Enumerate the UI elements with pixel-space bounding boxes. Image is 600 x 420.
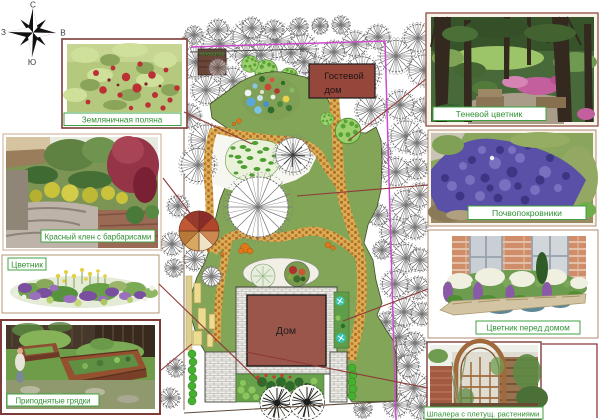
svg-text:генератор: генератор [199,52,224,58]
svg-text:Шпалера с плетущ. растениями: Шпалера с плетущ. растениями [427,410,540,419]
svg-text:В: В [60,29,66,38]
svg-text:З: З [1,28,6,37]
svg-text:Цветник перед домом: Цветник перед домом [486,324,570,333]
svg-text:Ю: Ю [28,58,36,67]
svg-text:С: С [30,1,36,10]
svg-text:Дом: Дом [276,325,296,337]
svg-text:Красный клен с барбарисами: Красный клен с барбарисами [45,233,152,242]
svg-text:Цветник: Цветник [11,260,43,270]
svg-text:Земляничная поляна: Земляничная поляна [82,116,163,125]
svg-text:Приподнятые грядки: Приподнятые грядки [15,397,90,406]
svg-text:Гостевой: Гостевой [324,71,364,82]
svg-text:Почвопокровники: Почвопокровники [492,208,562,218]
svg-text:дом: дом [324,85,341,96]
svg-text:Теневой цветник: Теневой цветник [456,109,523,119]
